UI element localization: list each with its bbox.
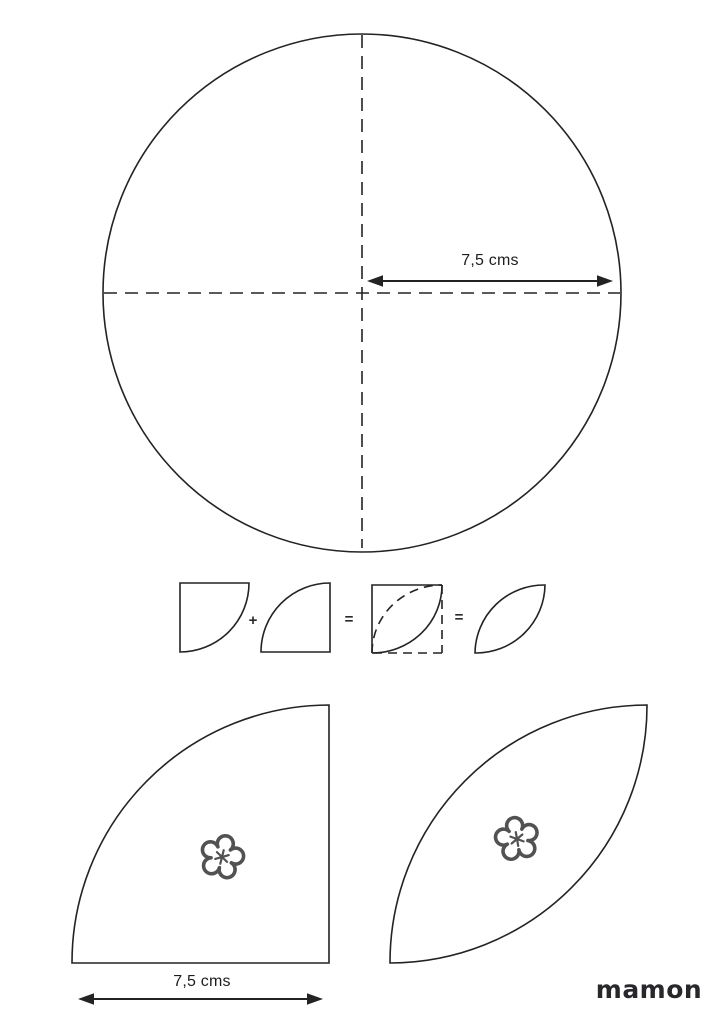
overlap-square-solid-edges bbox=[372, 585, 442, 653]
flower-asterisk-icon bbox=[197, 831, 247, 881]
equals-operator-2: = bbox=[450, 609, 468, 626]
petal-result bbox=[475, 585, 545, 653]
quarter-template bbox=[72, 705, 329, 963]
radius-arrow double-arrow-icon bbox=[367, 275, 613, 287]
overlap-square bbox=[372, 585, 442, 653]
quarter-piece-b bbox=[261, 583, 330, 652]
overlap-square-dashed-arc bbox=[372, 585, 442, 653]
quarter-piece-a bbox=[180, 583, 249, 652]
pattern-sheet: 7,5 cms + = = 7,5 cms mamon bbox=[0, 0, 724, 1024]
overlap-square-solid-arc bbox=[372, 585, 442, 653]
flower-asterisk-icon bbox=[493, 814, 541, 861]
overlap-square-dashed-edges bbox=[372, 585, 442, 653]
width-arrow double-arrow-icon bbox=[78, 993, 323, 1005]
pattern-drawing bbox=[0, 0, 724, 1024]
radius-dimension-label: 7,5 cms bbox=[452, 252, 528, 270]
plus-operator: + bbox=[244, 612, 262, 629]
width-dimension-label: 7,5 cms bbox=[164, 973, 240, 991]
petal-template bbox=[390, 705, 647, 963]
equals-operator-1: = bbox=[340, 611, 358, 628]
brand-logo: mamon bbox=[589, 975, 709, 1004]
